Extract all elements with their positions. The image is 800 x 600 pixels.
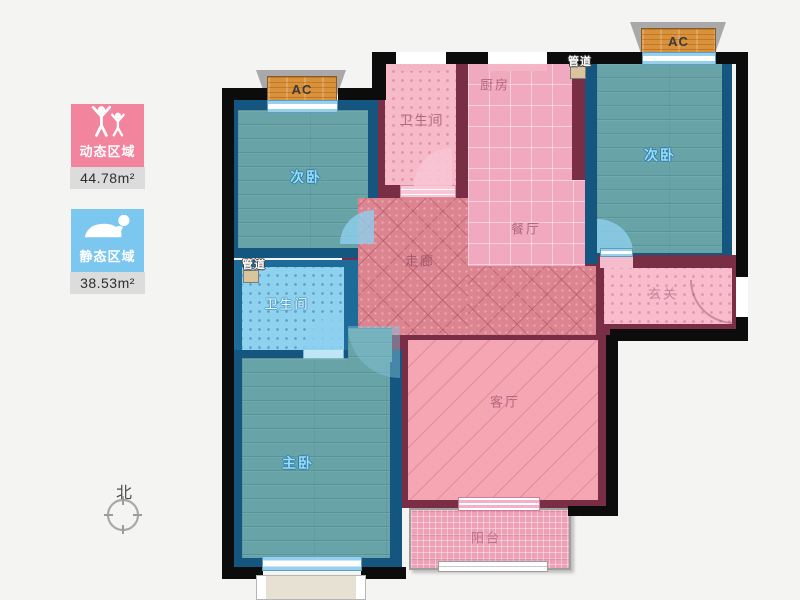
legend-dynamic-area: 44.78m² bbox=[70, 167, 145, 189]
window-bedroom-left-top bbox=[267, 100, 338, 113]
entry-sill bbox=[600, 257, 633, 268]
window-balcony-bottom bbox=[438, 561, 548, 572]
entry-door-opening bbox=[736, 277, 748, 317]
wall-segment bbox=[222, 88, 234, 579]
balcony-sliding-door bbox=[458, 497, 540, 511]
legend-static-card: 静态区域 bbox=[71, 209, 144, 272]
wall-segment bbox=[361, 567, 406, 579]
label-entry: 玄关 bbox=[648, 284, 678, 303]
legend-static-area: 38.53m² bbox=[70, 272, 145, 294]
window-bedroom-right-inner bbox=[600, 248, 633, 257]
window-master-bottom bbox=[262, 556, 362, 571]
window-top-bathroom bbox=[396, 52, 446, 64]
ac-right-label: AC bbox=[668, 34, 689, 49]
ac-left-label: AC bbox=[292, 82, 313, 97]
wall-segment bbox=[446, 52, 488, 64]
wall-segment bbox=[610, 329, 748, 341]
room-living bbox=[408, 340, 598, 500]
bathroom-top-threshold bbox=[400, 185, 456, 198]
label-living: 客厅 bbox=[490, 392, 520, 411]
wall-segment bbox=[568, 506, 618, 516]
label-corridor: 走廊 bbox=[405, 251, 435, 270]
label-bedroom-left: 次卧 bbox=[290, 167, 322, 187]
ac-unit-left-body: AC bbox=[267, 76, 337, 102]
label-bathroom-left: 卫生间 bbox=[264, 294, 309, 313]
label-kitchen: 厨房 bbox=[480, 75, 510, 94]
legend-dynamic-card: 动态区域 bbox=[71, 104, 144, 167]
label-balcony: 阳台 bbox=[471, 528, 501, 547]
wall-segment bbox=[372, 52, 396, 64]
label-bathroom-top: 卫生间 bbox=[399, 110, 444, 129]
label-dining: 餐厅 bbox=[511, 219, 541, 238]
compass-icon bbox=[101, 493, 145, 537]
label-master: 主卧 bbox=[282, 453, 314, 473]
label-bedroom-right: 次卧 bbox=[644, 145, 676, 165]
window-sill-top-2 bbox=[488, 63, 547, 71]
window-sill-top-1 bbox=[396, 63, 446, 71]
wall-segment bbox=[612, 52, 642, 64]
wall-segment bbox=[338, 88, 376, 100]
legend-dynamic-label: 动态区域 bbox=[79, 141, 135, 160]
label-duct-top: 管道 bbox=[568, 53, 592, 69]
wall-segment bbox=[736, 52, 748, 277]
window-bedroom-right-top bbox=[642, 52, 716, 65]
room-corridor-bottom bbox=[468, 266, 596, 335]
wall-segment bbox=[606, 335, 618, 516]
label-duct-left: 管道 bbox=[242, 256, 266, 272]
legend-static-label: 静态区域 bbox=[79, 246, 135, 265]
room-master bbox=[242, 358, 390, 558]
ac-unit-right-body: AC bbox=[641, 28, 716, 54]
bay-window-master bbox=[256, 575, 366, 600]
window-top-kitchen bbox=[488, 52, 547, 64]
sleeping-person-icon bbox=[80, 212, 136, 242]
cheering-people-icon bbox=[80, 104, 136, 137]
